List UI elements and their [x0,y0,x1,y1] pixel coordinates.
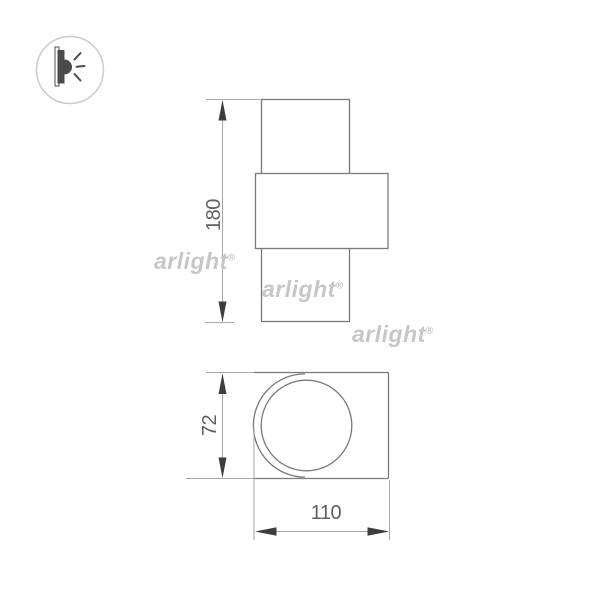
dimension-height-180: 180 [203,100,260,323]
arrow-right-icon [368,527,390,535]
arrow-left-icon [255,527,277,535]
brand-watermark: arlight® [154,250,235,273]
brand-watermark-text: arlight [262,276,336,302]
front-view-mount-plate [256,174,389,249]
dimension-label-depth: 72 [199,415,221,437]
arrow-up-icon [219,374,227,395]
icon-light-rays [75,53,85,81]
dimension-width-110: 110 [254,427,390,540]
arrow-down-icon [219,302,227,323]
brand-watermark: arlight® [352,323,433,346]
registered-trademark-icon: ® [336,280,343,291]
icon-lamp-body [58,50,65,84]
product-dimension-sheet: 180 72 [0,0,600,600]
dimension-label-height: 180 [203,199,225,231]
brand-watermark-text: arlight [352,321,426,347]
registered-trademark-icon: ® [426,325,433,336]
brand-watermark-text: arlight [154,248,228,274]
brand-watermark: arlight® [262,278,343,301]
bottom-view-lens-circle [261,380,352,471]
bottom-view: 72 110 [186,373,390,541]
arrow-down-icon [219,458,227,479]
arrow-up-icon [219,100,227,121]
wall-lamp-icon [37,37,104,104]
registered-trademark-icon: ® [228,252,235,263]
dimension-depth-72: 72 [199,374,227,479]
icon-lamp-lens [65,60,72,75]
dimension-label-width: 110 [311,502,342,524]
